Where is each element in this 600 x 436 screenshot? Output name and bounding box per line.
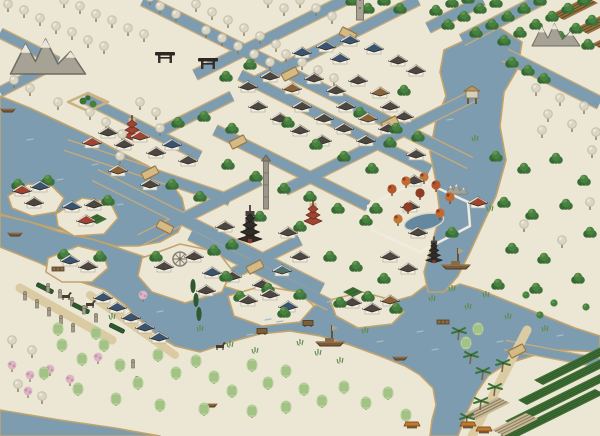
tree-cypress (193, 293, 198, 307)
waterwheel[interactable] (173, 252, 187, 266)
isometric-town-map[interactable] (0, 0, 600, 436)
rowboat[interactable] (393, 357, 407, 360)
rowboat[interactable] (1, 109, 15, 112)
tree-green (445, 0, 459, 8)
bush (550, 299, 557, 306)
statue (47, 307, 50, 316)
statue (23, 291, 26, 300)
raft[interactable] (52, 267, 64, 271)
tree-green (533, 0, 547, 6)
bush (522, 291, 529, 298)
statue (71, 323, 74, 332)
tree-cypress (196, 307, 201, 321)
game-viewport[interactable] (0, 0, 600, 436)
dock[interactable] (257, 329, 267, 335)
tree-green (489, 0, 503, 8)
dock[interactable] (303, 321, 313, 327)
raft[interactable] (437, 320, 449, 324)
statue (94, 313, 97, 322)
statue (131, 359, 134, 368)
stone-tower[interactable] (355, 0, 365, 20)
statue (35, 299, 38, 308)
tree-cypress (190, 279, 195, 293)
tree-green (577, 0, 591, 6)
statue (58, 289, 61, 298)
statue (82, 305, 85, 314)
rowboat[interactable] (8, 233, 22, 236)
statue (59, 315, 62, 324)
tree-green (377, 0, 391, 6)
bush (536, 311, 543, 318)
statue (46, 283, 49, 292)
bush (582, 303, 589, 310)
